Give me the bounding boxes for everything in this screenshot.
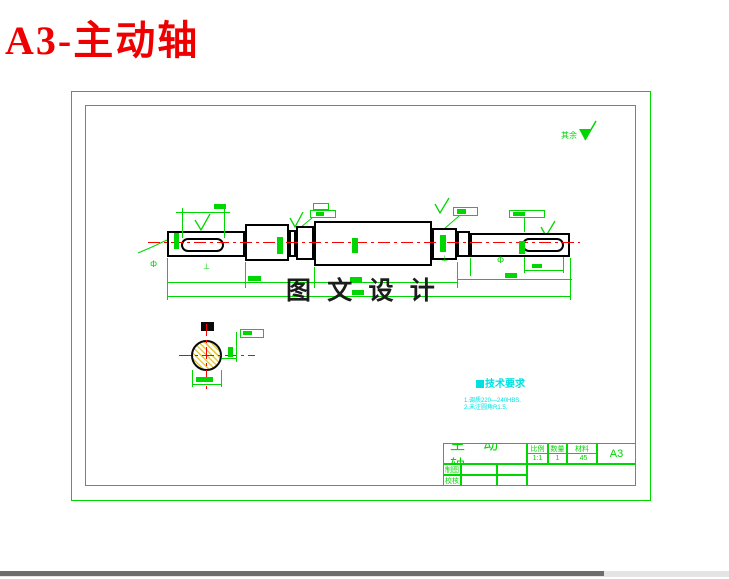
title-block-material-value: 45 — [567, 453, 597, 464]
extension-line — [236, 332, 237, 362]
watermark-text: 图 文 设 计 — [286, 271, 440, 307]
tech-requirements-heading: 技术要求 — [476, 375, 525, 390]
horizontal-scrollbar-thumb[interactable] — [0, 571, 604, 576]
surface-finish-note: 其余 — [561, 130, 577, 141]
dim-text-blob — [532, 264, 542, 268]
title-block-empty-cell — [461, 475, 497, 486]
dim-text-blob — [505, 273, 517, 278]
title-block-empty-cell — [461, 464, 497, 475]
extension-line — [563, 257, 564, 273]
dim-text-blob — [214, 204, 226, 209]
shaft-groove — [289, 230, 296, 257]
title-block-scale-value: 1:1 — [527, 453, 548, 464]
dim-text-blob — [352, 238, 358, 253]
section-key-block — [201, 322, 214, 331]
shaft-segment — [296, 226, 314, 260]
title-block-empty-cell — [497, 464, 527, 475]
centerline — [148, 242, 580, 243]
keyway-left — [181, 238, 224, 252]
title-block-drawn-label: 制图 — [443, 464, 461, 475]
dim-line — [222, 358, 236, 359]
bullet-square-icon — [476, 380, 484, 388]
dim-text-blob — [228, 347, 233, 357]
tolerance-frame-text — [316, 212, 324, 216]
dim-line — [457, 279, 572, 280]
section-centerline-horizontal — [179, 355, 255, 356]
extension-line — [457, 262, 458, 288]
shaft-collar — [457, 231, 470, 257]
title-block-empty-cell — [497, 475, 527, 486]
title-block: 主 动 轴 比例 1:1 数量 1 材料 45 A3 制图 校核 — [443, 443, 636, 486]
dim-text-blob — [248, 276, 261, 281]
dim-text-blob — [519, 241, 525, 254]
title-block-sheet-size: A3 — [597, 443, 636, 464]
dim-text-blob — [440, 235, 446, 252]
title-block-checked-label: 校核 — [443, 475, 461, 486]
title-block-part-name: 主 动 轴 — [443, 443, 527, 464]
tolerance-frame — [313, 203, 329, 210]
extension-line — [470, 258, 471, 276]
diameter-symbol: Φ — [150, 260, 157, 269]
dim-text-blob — [196, 377, 213, 382]
tolerance-frame-text — [513, 212, 525, 216]
tolerance-leader-line — [524, 218, 525, 232]
title-block-quantity-value: 1 — [548, 453, 567, 464]
extension-line — [245, 262, 246, 288]
perpendicular-symbol: ⊥ — [441, 255, 448, 263]
extension-line — [167, 258, 168, 300]
document-title: A3-主动轴 — [5, 8, 199, 66]
dim-text-blob — [277, 237, 283, 254]
tech-requirement-item: 2.未注圆角R1.5. — [464, 405, 507, 412]
dim-line — [192, 384, 221, 385]
shaft-segment-middle — [314, 221, 432, 266]
tolerance-frame-text — [457, 209, 466, 214]
diameter-symbol: Φ — [497, 256, 504, 265]
perpendicular-symbol: ⊥ — [203, 263, 210, 271]
dim-text-blob — [174, 233, 179, 249]
dim-line — [524, 270, 563, 271]
tech-requirements-title: 技术要求 — [485, 379, 525, 390]
dim-line — [176, 212, 230, 213]
keyway-right — [522, 238, 564, 252]
cad-viewer-screen: A3-主动轴 其余 — [0, 0, 729, 579]
extension-line — [221, 370, 222, 387]
title-block-empty-cell — [527, 464, 636, 486]
tolerance-frame-text — [243, 331, 252, 335]
